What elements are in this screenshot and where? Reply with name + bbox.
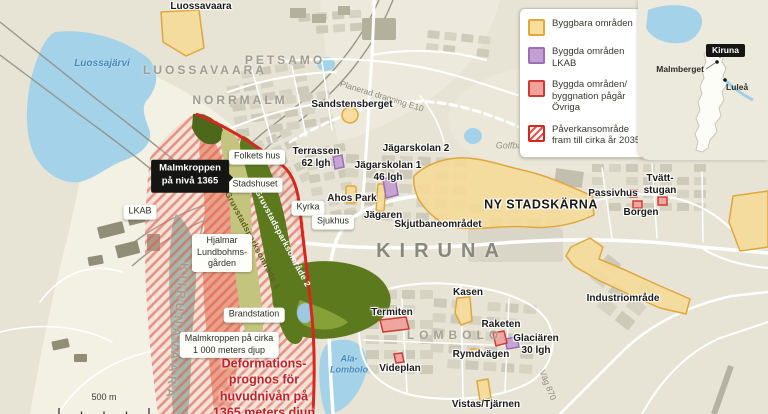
place-label-termiten: Termiten: [371, 307, 413, 319]
inset-label-malmberget: Malmberget: [638, 64, 704, 74]
place-label-terrassen: Terrassen 62 lgh: [292, 146, 339, 170]
scale-bar-graphic: [58, 407, 150, 414]
box-label-sjukhus: Sjukhus: [312, 215, 354, 230]
box-label-lkab: LKAB: [123, 205, 156, 220]
kiruna-map: LUOSSAVAARA PETSAMO NORRMALM KIRUNA LOMB…: [0, 0, 768, 414]
place-label-kasen: Kasen: [453, 287, 483, 299]
box-label-kyrka: Kyrka: [291, 201, 324, 216]
legend-item-byggda-ovriga: Byggda områden/ byggnation pågår Övriga: [528, 79, 647, 114]
place-label-borgen: Borgen: [624, 207, 659, 219]
scale-bar: 500 m: [58, 392, 150, 414]
place-label-glaciaren: Glaciären 30 lgh: [513, 333, 559, 357]
place-label-raketen: Raketen: [482, 319, 521, 331]
place-label-industriomrade: Industriområde: [587, 293, 660, 305]
box-label-hjalmar-lundbohmsgarden: Hjalmar Lundbohms- gården: [192, 234, 252, 272]
place-label-rymdvagen: Rymdvägen: [453, 349, 510, 361]
place-label-tvattstugan: Tvätt- stugan: [644, 173, 677, 197]
box-label-brandstation: Brandstation: [224, 308, 285, 323]
place-label-videplan: Videplan: [379, 363, 421, 375]
callout-malmkroppen-niva-1365: Malmkroppen på nivå 1365: [151, 160, 229, 193]
district-label-petsamo: PETSAMO: [245, 53, 325, 67]
lake-label-ala-lombolo: Ala- Lombolo: [330, 353, 368, 374]
legend-item-byggbara: Byggbara områden: [528, 18, 647, 36]
box-label-folkets-hus: Folkets hus: [229, 150, 285, 165]
place-label-sandstensberget: Sandstensberget: [311, 99, 392, 111]
deformation-prognosis-text: Deformations- prognos för huvudnivån på …: [213, 356, 315, 414]
legend-swatch-byggda-ovriga: [528, 80, 545, 97]
legend-label-byggda-lkab: Byggda områden LKAB: [552, 46, 624, 69]
legend-item-paverkansomrade: Påverkansområde fram till cirka år 2035: [528, 124, 647, 147]
legend-label-paverkansomrade: Påverkansområde fram till cirka år 2035: [552, 124, 640, 147]
inset-label-kiruna: Kiruna: [706, 44, 745, 57]
place-label-ny-stadskarna: NY STADSKÄRNA: [484, 198, 598, 213]
place-label-vistas-tjarnen: Vistas/Tjärnen: [452, 399, 520, 411]
legend-label-byggbara: Byggbara områden: [552, 18, 633, 30]
legend-label-byggda-ovriga: Byggda områden/ byggnation pågår Övriga: [552, 79, 627, 114]
district-label-norrmalm: NORRMALM: [192, 93, 287, 107]
lake-label-luossajarvi: Luossajärvi: [74, 58, 130, 70]
legend-swatch-byggda-lkab: [528, 47, 545, 64]
place-label-luossavaara: Luossavaara: [170, 1, 231, 13]
legend-swatch-paverkansomrade: [528, 125, 545, 142]
inset-lake: [646, 5, 702, 43]
place-label-skjutbaneomradet: Skjutbaneområdet: [394, 219, 481, 231]
place-label-jagarskolan-2: Jägarskolan 2: [383, 143, 450, 155]
box-label-malmkroppen-1000m: Malmkroppen på cirka 1 000 meters djup: [180, 332, 279, 358]
place-label-jagarskolan-1: Jägarskolan 1 46 lgh: [355, 160, 422, 184]
inset-map-sweden: Kiruna Malmberget Luleå: [638, 0, 768, 160]
inset-graphics: [638, 0, 768, 160]
legend-item-byggda-lkab: Byggda områden LKAB: [528, 46, 647, 69]
legend-swatch-byggbara: [528, 19, 545, 36]
district-label-kiruna: KIRUNA: [376, 240, 508, 264]
place-label-ahos-park: Ahos Park: [327, 193, 376, 205]
place-label-passivhus: Passivhus: [588, 188, 637, 200]
inset-label-lulea: Luleå: [726, 82, 748, 92]
scale-bar-label: 500 m: [58, 392, 150, 402]
legend: Byggbara områden Byggda områden LKAB Byg…: [519, 8, 656, 158]
